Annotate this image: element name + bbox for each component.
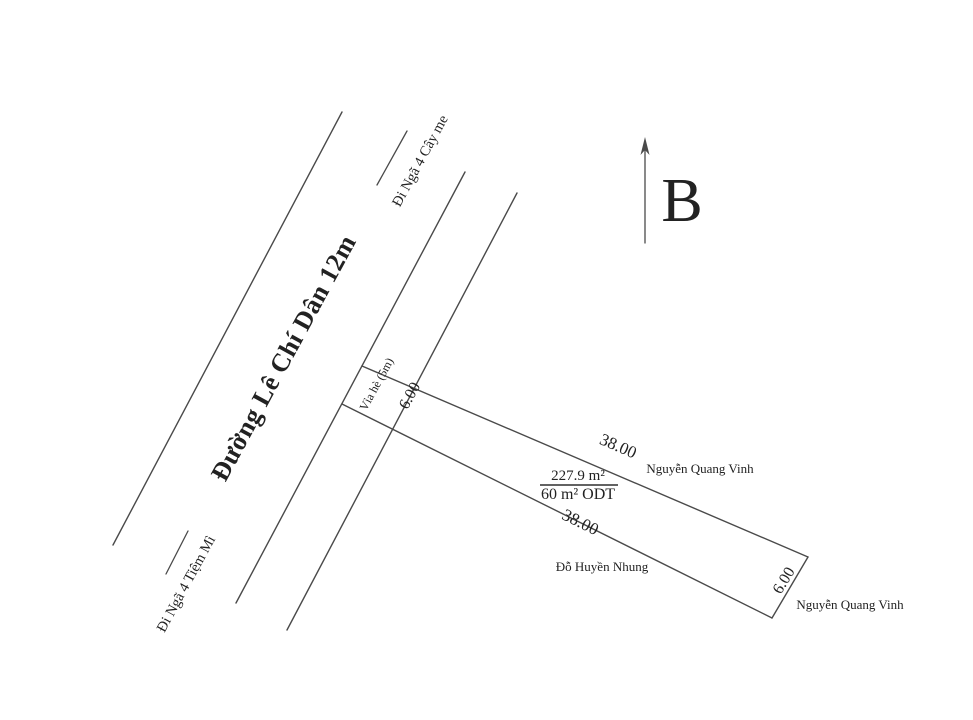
parcel-area-total-label: 227.9 m² (551, 468, 605, 484)
direction-label-bottom: Đi Ngã 4 Tiệm Mì (154, 533, 219, 635)
parcel-bottom-boundary-line (342, 404, 772, 618)
road-continuation-mark-bottom (166, 531, 188, 574)
north-label: B (661, 167, 702, 235)
parcel-front-width-label: 6.00 (396, 379, 424, 412)
parcel-length-top-label: 38.00 (597, 430, 640, 463)
cadastral-sketch-page: B Đường Lê Chí Dân 12m Đi Ngã 4 Cây me Đ… (0, 0, 973, 720)
neighbor-east-owner-label: Nguyễn Quang Vinh (796, 597, 904, 612)
neighbor-south-owner-label: Đỗ Huyền Nhung (556, 559, 649, 574)
parcel-area-block: 227.9 m² 60 m² ODT (540, 468, 618, 503)
parcel-area-building-label: 60 m² ODT (541, 486, 615, 503)
north-arrow (641, 137, 650, 243)
parcel-length-bottom-label: 38.00 (559, 505, 602, 539)
cadastral-drawing: B Đường Lê Chí Dân 12m Đi Ngã 4 Cây me Đ… (0, 0, 973, 720)
direction-label-top: Đi Ngã 4 Cây me (389, 113, 451, 210)
neighbor-north-owner-label: Nguyễn Quang Vinh (646, 461, 754, 476)
road-name-label: Đường Lê Chí Dân 12m (205, 230, 362, 486)
